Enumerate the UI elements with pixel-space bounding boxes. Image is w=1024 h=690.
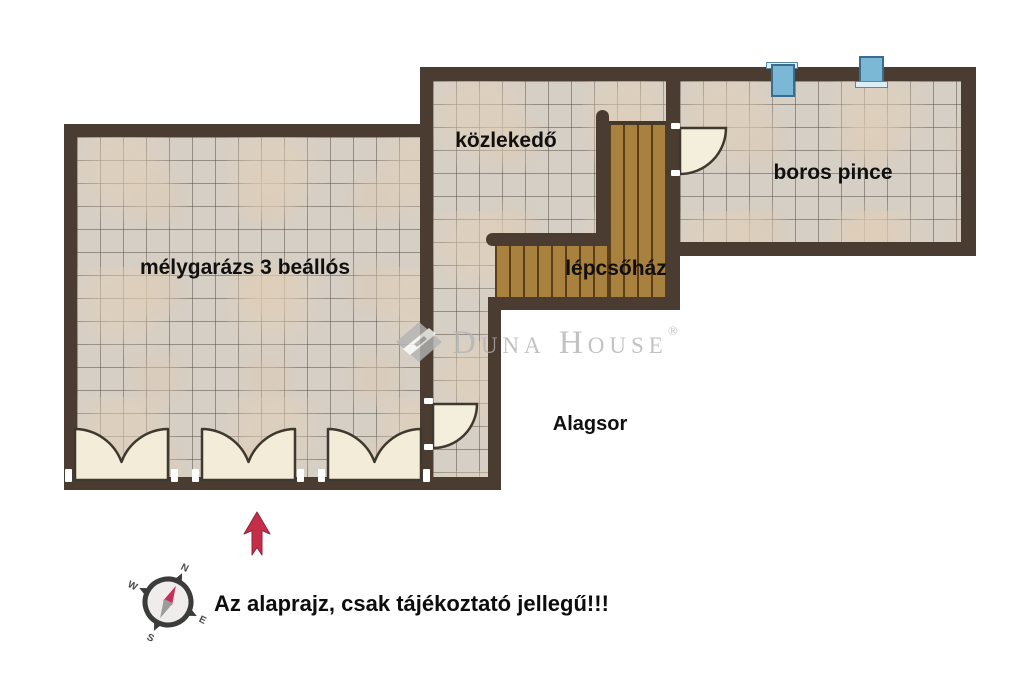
wall-cellar-right bbox=[961, 67, 976, 256]
watermark-logo-icon bbox=[394, 320, 444, 364]
door-arc-cellar-icon bbox=[672, 120, 742, 185]
room-label-garage: mélygarázs 3 beállós bbox=[120, 256, 370, 280]
jamb-bracket bbox=[192, 469, 199, 482]
jamb-bracket bbox=[671, 123, 680, 129]
stair-rail-horizontal bbox=[486, 233, 609, 246]
disclaimer-text: Az alaprajz, csak tájékoztató jellegű!!! bbox=[214, 591, 609, 617]
room-label-hallway: közlekedő bbox=[436, 129, 576, 153]
door-arc-corridor-icon bbox=[425, 395, 495, 460]
floor-plan-canvas: mélygarázs 3 beállós közlekedő lépcsőház… bbox=[0, 0, 1024, 690]
room-label-staircase: lépcsőház bbox=[546, 257, 686, 281]
jamb-bracket bbox=[424, 444, 433, 450]
svg-text:S: S bbox=[145, 632, 156, 645]
north-arrow-icon bbox=[243, 511, 271, 557]
jamb-bracket bbox=[297, 469, 304, 482]
jamb-bracket bbox=[171, 469, 178, 482]
room-label-wine-cellar: boros pince bbox=[758, 161, 908, 185]
jamb-bracket bbox=[424, 398, 433, 404]
floor-level-label: Alagsor bbox=[540, 413, 640, 436]
jamb-bracket bbox=[65, 469, 72, 482]
jamb-bracket bbox=[423, 469, 430, 482]
compass-rose-icon: N E S W bbox=[109, 543, 227, 661]
wall-stair-bottom bbox=[488, 297, 680, 310]
window-icon-2 bbox=[855, 81, 888, 88]
wall-cellar-bottom bbox=[666, 242, 976, 256]
svg-text:E: E bbox=[197, 614, 208, 627]
wall-top bbox=[420, 67, 976, 81]
svg-text:N: N bbox=[179, 562, 190, 575]
stair-rail-vertical bbox=[596, 110, 609, 246]
garage-doors-icon bbox=[64, 420, 436, 490]
watermark-brand-text: Duna House® bbox=[452, 324, 678, 360]
svg-text:W: W bbox=[126, 579, 140, 593]
jamb-bracket bbox=[671, 170, 680, 176]
jamb-bracket bbox=[318, 469, 325, 482]
registered-mark: ® bbox=[668, 323, 678, 338]
window-icon-1 bbox=[771, 64, 795, 97]
wall-garage-top bbox=[64, 124, 433, 137]
watermark: Duna House® bbox=[394, 320, 678, 364]
